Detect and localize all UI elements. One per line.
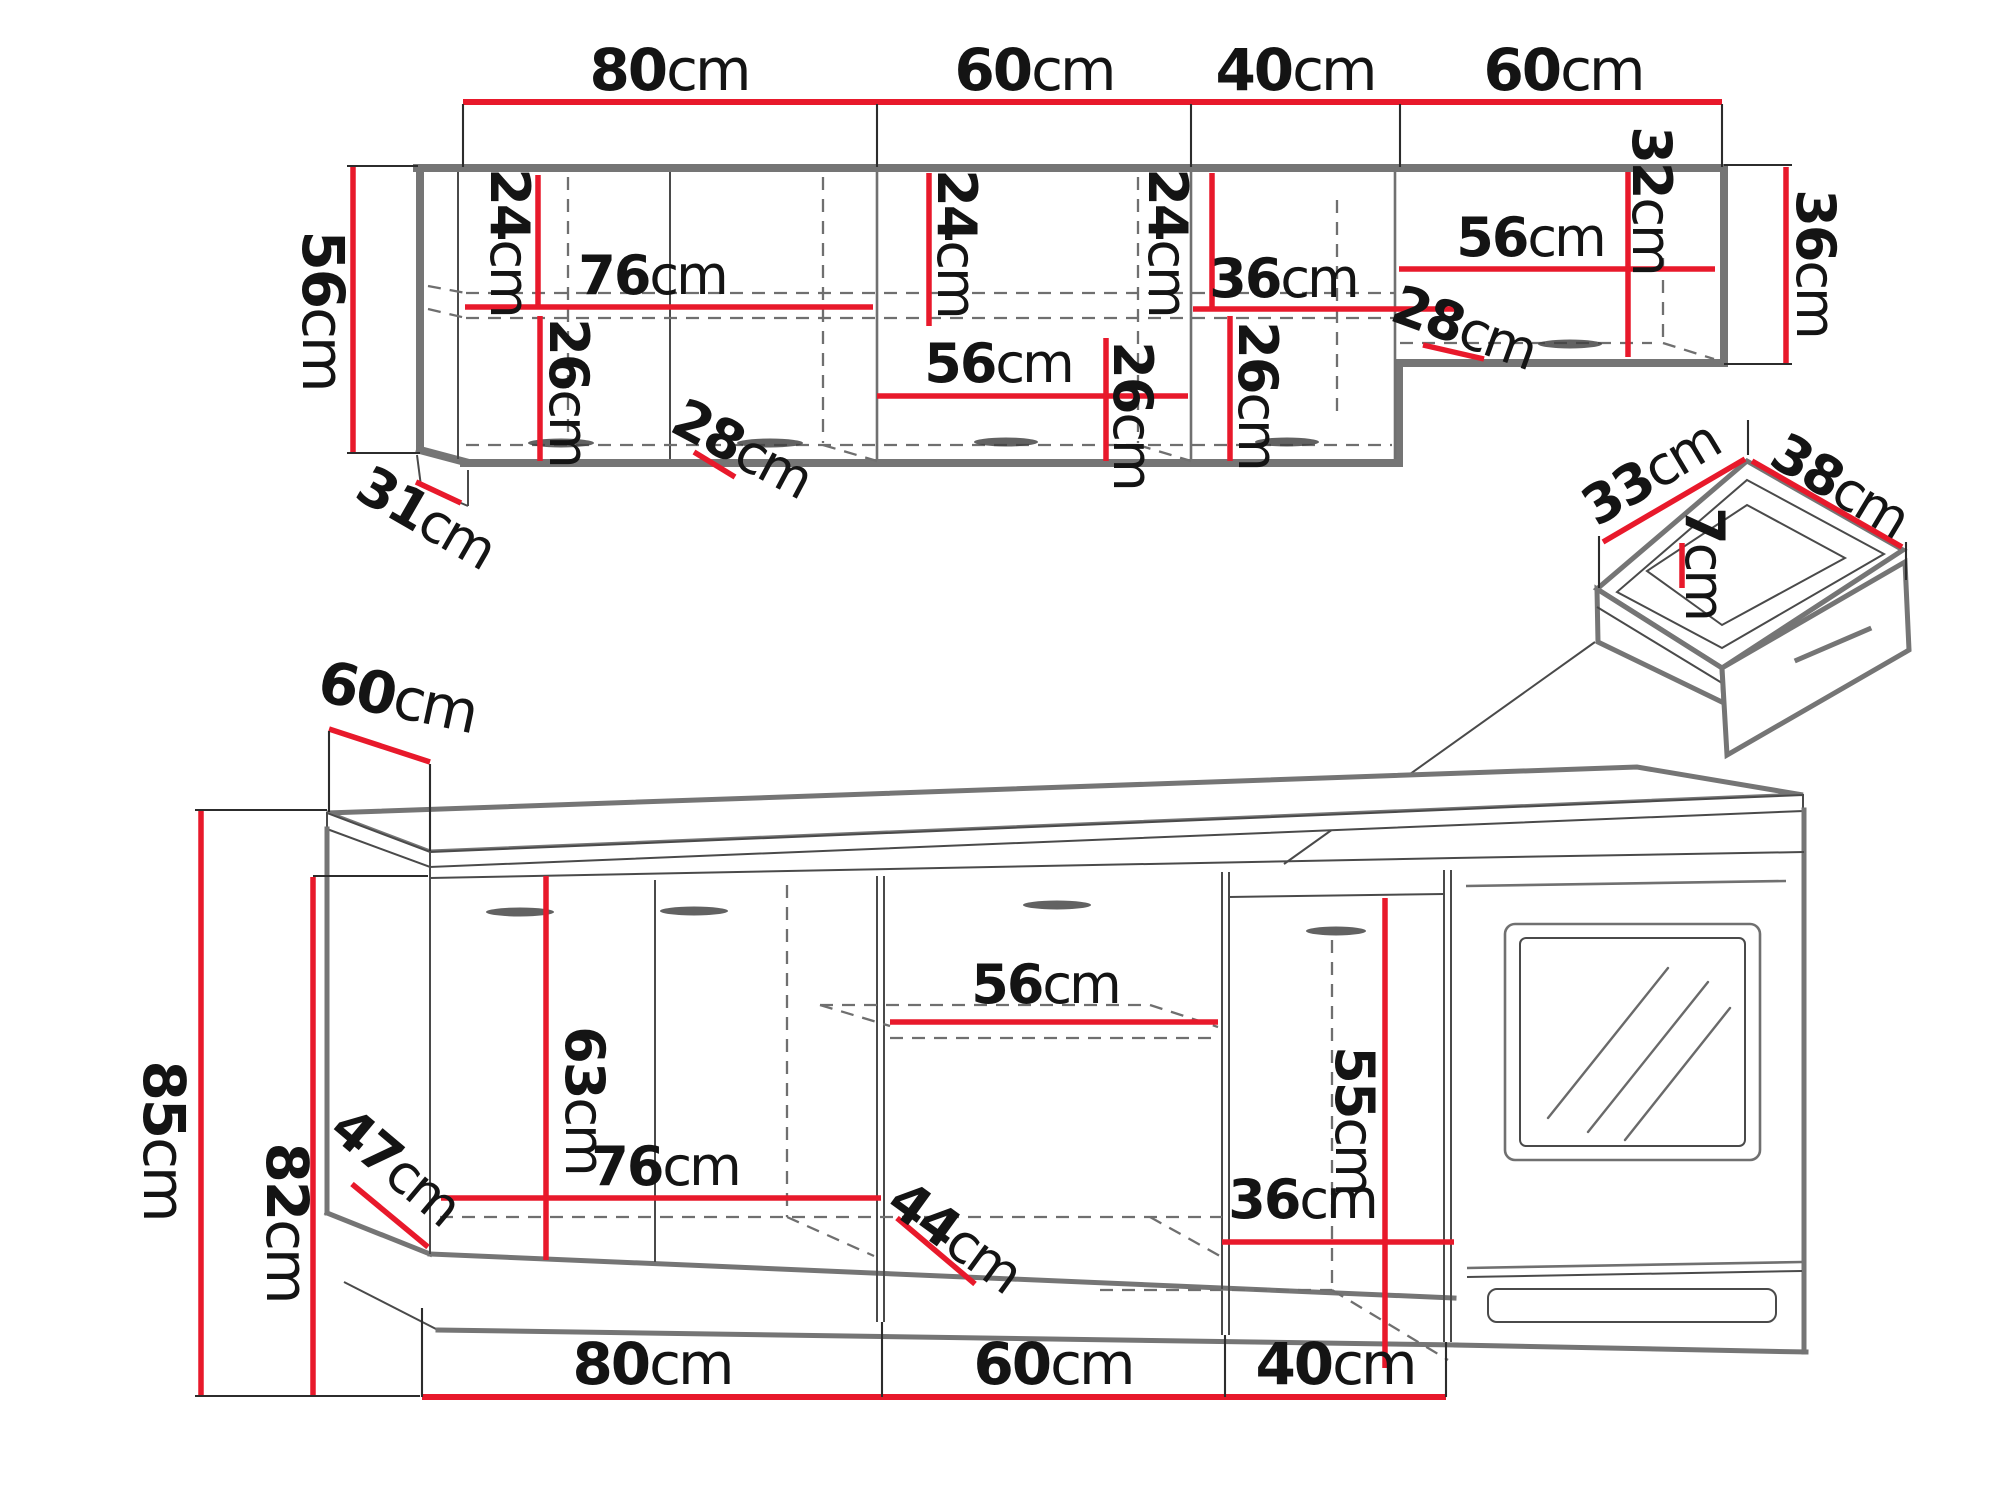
drawer-rail-line xyxy=(1229,894,1444,897)
dim-label-24cm: 24cm xyxy=(1136,168,1199,315)
dim-label-44cm: 44cm xyxy=(877,1168,1033,1306)
cabinet-dimension-diagram: 80cm 60cm 40cm 60cm 56cm 31cm 24cm 76cm … xyxy=(0,0,2000,1500)
oven-glass-frame xyxy=(1505,924,1760,1160)
dim-label-36cm: 36cm xyxy=(1209,247,1356,310)
dim-label-26cm: 26cm xyxy=(1101,341,1164,488)
dim-label-60cm: 60cm xyxy=(954,36,1113,104)
oven xyxy=(1466,881,1802,1322)
plinth-left-slant xyxy=(344,1282,438,1330)
oven-trim-line xyxy=(1466,881,1786,886)
dim-label-56cm-left: 56cm xyxy=(289,230,357,389)
dim-label-60cm-bottom: 60cm xyxy=(973,1330,1132,1398)
base-cabinet-run: 60cm 85cm 82cm 47cm 63cm 56cm 76cm 44cm … xyxy=(130,647,1806,1398)
dim-label-80cm: 80cm xyxy=(589,36,748,104)
dim-label-56cm: 56cm xyxy=(1456,206,1603,269)
base-door-handles xyxy=(486,901,1366,936)
dim-label-32cm: 32cm xyxy=(1620,126,1683,273)
dim-label-85cm: 85cm xyxy=(130,1060,198,1219)
oven-handle-bar xyxy=(1467,1262,1802,1268)
dim-label-31cm: 31cm xyxy=(346,453,505,581)
oven-bottom-edge xyxy=(1456,1345,1806,1352)
oven-top-line xyxy=(1454,852,1804,858)
dim-label-26cm: 26cm xyxy=(1226,321,1289,468)
dim-label-28cm: 28cm xyxy=(662,386,822,511)
dim-label-60cm: 60cm xyxy=(1483,36,1642,104)
dim-label-40cm: 40cm xyxy=(1215,36,1374,104)
dim-label-80cm-bottom: 80cm xyxy=(572,1330,731,1398)
door-handle xyxy=(1538,340,1602,349)
dim-label-56cm: 56cm xyxy=(924,332,1071,395)
depth-dashed-line xyxy=(787,1217,874,1256)
depth-dashed-line xyxy=(1150,1217,1220,1256)
dim-label-24cm: 24cm xyxy=(478,168,541,315)
dim-label-24cm: 24cm xyxy=(925,169,988,316)
dim-label-36cm-right: 36cm xyxy=(1784,189,1847,336)
depth-dashed-line xyxy=(1663,343,1714,359)
drawer-handle xyxy=(1306,927,1366,936)
oven-handle-bar-lower xyxy=(1467,1271,1802,1277)
dim-label-36cm: 36cm xyxy=(1228,1168,1375,1231)
dim-label-40cm-bottom: 40cm xyxy=(1255,1330,1414,1398)
countertop xyxy=(327,767,1803,867)
depth-dashed-line xyxy=(428,286,466,293)
dim-label-76cm: 76cm xyxy=(578,244,725,307)
door-handle xyxy=(660,907,728,916)
door-handle xyxy=(1023,901,1091,910)
dim-label-26cm: 26cm xyxy=(537,318,600,465)
depth-dashed-line xyxy=(820,1005,890,1026)
depth-dashed-line xyxy=(823,445,877,461)
dim-label-82cm: 82cm xyxy=(253,1142,321,1301)
depth-dashed-line xyxy=(428,309,466,318)
oven-lower-drawer xyxy=(1488,1289,1776,1322)
dim-label-76cm: 76cm xyxy=(591,1135,738,1198)
dim-label-56cm-shelf: 56cm xyxy=(971,953,1118,1016)
dim-label-7cm: 7cm xyxy=(1673,507,1736,619)
door-handle xyxy=(974,438,1038,447)
diagram-canvas: 80cm 60cm 40cm 60cm 56cm 31cm 24cm 76cm … xyxy=(0,0,2000,1500)
